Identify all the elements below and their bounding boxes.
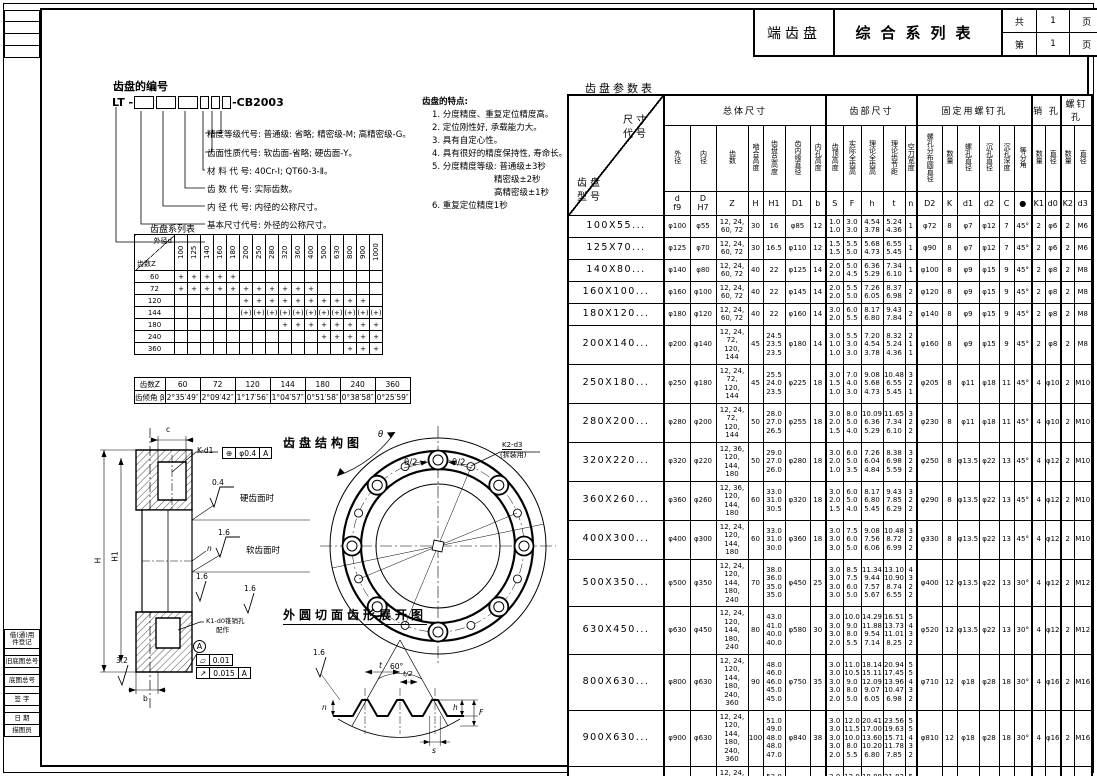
param-cell: 2 xyxy=(1061,654,1074,710)
param-cell: 1 xyxy=(905,237,917,259)
param-cell: φ12 xyxy=(1045,442,1061,481)
param-cell: φ85 xyxy=(785,215,810,237)
param-col-name-text: 数量 xyxy=(946,150,953,164)
param-cell: 7.0 4.0 3.0 xyxy=(843,364,861,403)
param-cell: φ22 xyxy=(979,442,999,481)
param-cell: 7 xyxy=(999,215,1014,237)
param-cell: 33.0 31.0 30.5 xyxy=(763,481,785,520)
param-data-row: 250X180...φ250φ18012, 24, 72, 120, 14445… xyxy=(568,364,1092,403)
param-cell: φ12 xyxy=(1045,559,1061,607)
structure-diagram-title: 齿盘结构图 xyxy=(283,434,363,451)
param-cell: 630X450... xyxy=(568,607,664,655)
param-cell: φ15 xyxy=(979,325,999,364)
param-cell: φ7 xyxy=(957,237,979,259)
param-cell: 2.0 2.0 xyxy=(826,259,843,281)
param-cell: 5.0 4.5 xyxy=(843,259,861,281)
param-cell: 8 xyxy=(942,237,957,259)
param-cell: 4 xyxy=(1032,766,1045,776)
param-cell: 2 xyxy=(1032,303,1045,325)
param-col-name-text: 沉孔深度 xyxy=(1003,143,1010,171)
param-cell: 45° xyxy=(1014,215,1032,237)
param-data-row: 125X70...φ125φ7012, 24, 60, 723016.5φ110… xyxy=(568,237,1092,259)
param-cell: M6 xyxy=(1074,215,1092,237)
param-cell: 60 xyxy=(748,520,763,559)
param-data-row: 400X300...φ400φ30012, 24, 120, 144, 1806… xyxy=(568,520,1092,559)
param-cell: 9 xyxy=(999,303,1014,325)
param-cell: φ18 xyxy=(957,654,979,710)
param-cell: φ9 xyxy=(957,281,979,303)
param-cell: 8 xyxy=(942,442,957,481)
param-col-name: 空刀宽度 xyxy=(905,125,917,191)
param-cell: φ255 xyxy=(785,403,810,442)
param-cell: 12, 24, 60, 72 xyxy=(716,259,748,281)
param-cell: φ250 xyxy=(917,442,942,481)
param-cell: 2 xyxy=(905,281,917,303)
param-symbol: b xyxy=(810,191,826,215)
param-symbol: Z xyxy=(716,191,748,215)
param-cell: φ160 xyxy=(785,303,810,325)
param-data-row: 140X80...φ140φ8012, 24, 60, 724022φ12514… xyxy=(568,259,1092,281)
param-cell: 3 2 2 xyxy=(905,520,917,559)
param-cell: 3.0 2.0 1.5 xyxy=(826,481,843,520)
param-data-row: 200X140...φ200φ14012, 24, 72, 120, 14445… xyxy=(568,325,1092,364)
finish-16-value: 1.6 xyxy=(196,572,208,581)
param-cell: φ180 xyxy=(785,325,810,364)
param-corner: 尺寸 代号齿盘 型号 xyxy=(568,95,664,215)
param-cell: 9 xyxy=(999,281,1014,303)
param-cell: 3.0 2.0 1.0 xyxy=(826,442,843,481)
param-cell: 12, 24, 120, 144, 180 xyxy=(716,520,748,559)
param-cell: 2 xyxy=(1032,281,1045,303)
param-cell: φ9 xyxy=(957,325,979,364)
param-cell: φ500 xyxy=(664,559,690,607)
param-cell: 20.41 17.00 13.60 10.20 6.80 xyxy=(861,710,883,766)
param-data-row: 800X630...φ800φ63012, 24, 120, 144, 180,… xyxy=(568,654,1092,710)
param-col-name: 数量 xyxy=(1061,125,1074,191)
param-cell: 70 xyxy=(748,559,763,607)
position-symbol: ⊕ xyxy=(223,448,236,458)
param-cell: 10.48 8.72 6.99 xyxy=(883,520,905,559)
param-symbol: D2 xyxy=(917,191,942,215)
param-cell: 12.0 10.5 9.0 6.0 xyxy=(843,766,861,776)
param-cell: 18 xyxy=(999,710,1014,766)
finish-soft-label: 软齿面时 xyxy=(246,544,280,556)
param-symbol: K1 xyxy=(1032,191,1045,215)
theta-label: θ xyxy=(378,430,383,440)
param-cell: φ9 xyxy=(957,259,979,281)
param-cell: φ8 xyxy=(1045,281,1061,303)
param-col-name: 等分角 xyxy=(1014,125,1032,191)
param-cell: 2 xyxy=(1061,303,1074,325)
param-col-name-text: 啮合高度 xyxy=(752,143,759,171)
param-cell: 12, 24, 72, 120, 144 xyxy=(716,325,748,364)
param-cell: 4 xyxy=(1032,520,1045,559)
param-cell: 13 xyxy=(999,520,1014,559)
param-cell: 50 xyxy=(748,403,763,442)
param-cell: 2 xyxy=(1061,403,1074,442)
param-cell: φ230 xyxy=(917,403,942,442)
param-data-row: 500X350...φ500φ35012, 24, 120, 144, 180,… xyxy=(568,559,1092,607)
param-cell: M10 xyxy=(1074,520,1092,559)
param-cell: 16.5 xyxy=(763,237,785,259)
param-data-row: 160X100...φ160φ10012, 24, 60, 724022φ145… xyxy=(568,281,1092,303)
param-cell: φ280 xyxy=(785,442,810,481)
param-cell: φ28 xyxy=(979,710,999,766)
param-cell: φ22 xyxy=(979,520,999,559)
param-cell: 22 xyxy=(763,281,785,303)
param-cell: 4 xyxy=(1032,403,1045,442)
param-cell: 3.0 2.0 1.5 xyxy=(826,403,843,442)
param-cell: M12 xyxy=(1074,559,1092,607)
param-symbol: H1 xyxy=(763,191,785,215)
param-cell: 2 xyxy=(1061,520,1074,559)
param-cell: 45° xyxy=(1014,442,1032,481)
param-cell: M10 xyxy=(1074,403,1092,442)
param-cell: 9 xyxy=(999,259,1014,281)
param-col-name: 沉孔深度 xyxy=(999,125,1014,191)
param-cell: 6.55 5.45 xyxy=(883,237,905,259)
param-cell: φ280 xyxy=(664,403,690,442)
param-col-name-text: 直径 xyxy=(1079,150,1086,164)
param-cell: φ12 xyxy=(979,237,999,259)
param-cell: 12.0 11.5 10.0 8.0 5.5 xyxy=(843,710,861,766)
param-cell: φ140 xyxy=(917,303,942,325)
param-cell: φ360 xyxy=(785,520,810,559)
param-cell: φ300 xyxy=(690,520,716,559)
param-col-name: 啮合高度 xyxy=(748,125,763,191)
finish-32-value: 3.2 xyxy=(116,656,128,665)
param-cell: 100 xyxy=(748,710,763,766)
param-cell: 5 5 4 3 2 xyxy=(905,710,917,766)
param-cell: M8 xyxy=(1074,325,1092,364)
param-cell: φ18 xyxy=(957,766,979,776)
param-cell: 12, 36, 120, 144, 180 xyxy=(716,481,748,520)
param-cell: 12, 24, 120, 144, 180, 240 xyxy=(716,559,748,607)
param-cell: 12 xyxy=(942,607,957,655)
param-cell: φ120 xyxy=(690,303,716,325)
param-cell: φ180 xyxy=(664,303,690,325)
position-datum: A xyxy=(260,448,271,458)
dim-h1-label: H1 xyxy=(111,551,120,561)
param-cell: M16 xyxy=(1074,766,1092,776)
param-cell: φ72 xyxy=(917,215,942,237)
dim-t-half-label: t/2 xyxy=(403,670,413,678)
param-cell: 8 xyxy=(942,520,957,559)
param-cell: 3 2 2 xyxy=(905,481,917,520)
param-cell: 6.0 5.5 xyxy=(843,303,861,325)
structure-diagram xyxy=(320,426,556,666)
param-cell: 18 xyxy=(810,481,826,520)
param-cell: φ940 xyxy=(785,766,810,776)
param-cell: 7.5 6.0 5.0 xyxy=(843,520,861,559)
param-cell: 18.89 15.11 11.34 7.56 xyxy=(861,766,883,776)
param-cell: 38.0 36.0 35.0 35.0 xyxy=(763,559,785,607)
param-cell: 1.0 1.0 xyxy=(826,215,843,237)
param-cell: 10.48 6.55 5.45 xyxy=(883,364,905,403)
param-cell: 38 xyxy=(810,710,826,766)
param-cell: 8 xyxy=(942,281,957,303)
param-cell: 5 4 3 2 xyxy=(905,607,917,655)
drawing-sheet: 借(通)用 件登记 旧底图总号 底图总号 签 字 日 期 描图员 端齿盘 综合系… xyxy=(0,0,1097,776)
param-cell: M12 xyxy=(1074,607,1092,655)
param-cell: φ350 xyxy=(690,559,716,607)
dim-h-label: H xyxy=(93,558,102,564)
param-cell: M16 xyxy=(1074,710,1092,766)
param-cell: 12 xyxy=(810,215,826,237)
param-cell: φ140 xyxy=(690,325,716,364)
param-col-name: 理论齿节距 xyxy=(883,125,905,191)
param-col-name-text: 理论全齿高 xyxy=(869,140,876,175)
param-cell: 45° xyxy=(1014,325,1032,364)
runout-value: 0.015 xyxy=(210,668,238,678)
param-col-name: 直径 xyxy=(1045,125,1061,191)
param-symbol: ● xyxy=(1014,191,1032,215)
param-cell: 12, 24, 144, 180, 240, 360 xyxy=(716,766,748,776)
param-cell: φ28 xyxy=(979,654,999,710)
param-cell: 18 xyxy=(999,654,1014,710)
param-cell: 3 2 1 xyxy=(905,364,917,403)
param-cell: 33.0 31.0 30.0 xyxy=(763,520,785,559)
param-cell: 160X100... xyxy=(568,281,664,303)
param-cell: 30 xyxy=(748,237,763,259)
param-col-name-text: 内孔高度 xyxy=(814,143,821,171)
param-corner-top: 尺寸 代号 xyxy=(623,114,649,142)
param-group-header: 销 孔 xyxy=(1032,95,1061,125)
dim-c-label: c xyxy=(166,425,170,434)
dim-b-label: b xyxy=(143,694,148,703)
param-cell: φ580 xyxy=(785,607,810,655)
param-symbol: t xyxy=(883,191,905,215)
param-cell: M8 xyxy=(1074,281,1092,303)
param-cell: M16 xyxy=(1074,654,1092,710)
param-cell: 11.65 7.34 6.10 xyxy=(883,403,905,442)
param-cell: 4 xyxy=(1032,607,1045,655)
param-cell: φ260 xyxy=(690,481,716,520)
param-cell: φ160 xyxy=(917,325,942,364)
param-cell: 18 xyxy=(810,520,826,559)
param-cell: 45° xyxy=(1014,481,1032,520)
param-cell: φ840 xyxy=(785,710,810,766)
param-cell: φ18 xyxy=(979,364,999,403)
flatness-tolerance-frame: ▱ 0.01 xyxy=(196,654,233,666)
param-cell: 3.0 3.0 3.0 3.0 xyxy=(826,559,843,607)
param-cell: φ900 xyxy=(664,710,690,766)
param-cell: φ125 xyxy=(785,259,810,281)
param-data-row: 280X200...φ280φ20012, 24, 72, 120, 14450… xyxy=(568,403,1092,442)
param-col-name-text: 等分角 xyxy=(1019,147,1026,168)
param-col-name-text: 沉孔直径 xyxy=(986,143,993,171)
param-cell: 8 xyxy=(942,259,957,281)
param-cell: 16 xyxy=(763,215,785,237)
param-cell: 1 xyxy=(905,259,917,281)
param-cell: 8.37 6.98 xyxy=(883,281,905,303)
param-cell: 3.0 3.0 3.0 3.0 2.0 xyxy=(826,710,843,766)
param-cell: φ180 xyxy=(690,364,716,403)
param-col-name: 内孔高度 xyxy=(810,125,826,191)
param-cell: φ910 xyxy=(917,766,942,776)
param-cell: 2 xyxy=(1061,364,1074,403)
param-cell: 30° xyxy=(1014,654,1032,710)
param-cell: φ13.5 xyxy=(957,442,979,481)
param-cell: φ11 xyxy=(957,403,979,442)
param-cell: 40 xyxy=(748,281,763,303)
param-cell: φ630 xyxy=(690,710,716,766)
param-symbol: d1 xyxy=(957,191,979,215)
param-symbol: S xyxy=(826,191,843,215)
param-cell: 2 xyxy=(1061,259,1074,281)
param-cell: 8.38 6.98 5.59 xyxy=(883,442,905,481)
param-cell: 45 xyxy=(748,364,763,403)
param-cell: φ13.5 xyxy=(957,559,979,607)
param-cell: φ630 xyxy=(664,607,690,655)
param-cell: φ100 xyxy=(664,215,690,237)
legend-leaders xyxy=(116,107,221,242)
param-col-name: 齿内缘直径 xyxy=(785,125,810,191)
param-cell: 12, 24, 120, 144, 180, 240 xyxy=(716,607,748,655)
param-symbol: h xyxy=(861,191,883,215)
param-cell: 9.08 5.68 4.73 xyxy=(861,364,883,403)
param-cell: φ205 xyxy=(917,364,942,403)
param-cell: 8 xyxy=(942,403,957,442)
param-cell: 6.0 5.0 3.5 xyxy=(843,442,861,481)
param-symbol: d2 xyxy=(979,191,999,215)
param-cell: φ1000 xyxy=(664,766,690,776)
param-cell: M8 xyxy=(1074,303,1092,325)
param-cell: φ400 xyxy=(664,520,690,559)
param-cell: 12 xyxy=(942,559,957,607)
param-cell: 100X55... xyxy=(568,215,664,237)
param-cell: 3.0 3.0 xyxy=(843,215,861,237)
param-cell: 90 xyxy=(748,654,763,710)
param-cell: 12, 24, 72, 120, 144 xyxy=(716,364,748,403)
param-cell: 16.51 13.73 11.01 8.25 xyxy=(883,607,905,655)
param-col-name-text: 螺孔分布圆直径 xyxy=(926,133,933,182)
param-cell: φ16 xyxy=(1045,654,1061,710)
param-cell: φ13.5 xyxy=(957,520,979,559)
param-col-name-text: 数量 xyxy=(1064,150,1071,164)
param-col-name-text: 理论齿节距 xyxy=(891,140,898,175)
param-cell: 28.0 27.0 26.5 xyxy=(763,403,785,442)
param-col-name: 理论全齿高 xyxy=(861,125,883,191)
param-cell: φ8 xyxy=(1045,325,1061,364)
param-cell: 360X260... xyxy=(568,481,664,520)
param-cell: 12, 24, 60, 72 xyxy=(716,215,748,237)
theta-half-left-label: θ/2 xyxy=(404,458,417,468)
param-cell: φ120 xyxy=(917,281,942,303)
param-cell: φ320 xyxy=(785,481,810,520)
param-symbol: d f9 xyxy=(664,191,690,215)
param-cell: φ10 xyxy=(1045,364,1061,403)
finish-hard-value: 0.4 xyxy=(212,478,224,487)
param-cell: 25.5 24.0 23.5 xyxy=(763,364,785,403)
param-cell: M10 xyxy=(1074,481,1092,520)
param-data-row: 630X450...φ630φ45012, 24, 120, 144, 180,… xyxy=(568,607,1092,655)
param-cell: 2 xyxy=(1061,215,1074,237)
param-cell: 180X120... xyxy=(568,303,664,325)
tooth-profile xyxy=(316,640,478,746)
angle-60-label: 60° xyxy=(390,662,403,671)
param-cell: 4 xyxy=(1032,559,1045,607)
param-cell: φ90 xyxy=(917,237,942,259)
pin-hole-note2: 配作 xyxy=(216,624,229,634)
param-cell: 50 xyxy=(748,442,763,481)
param-cell: 200X140... xyxy=(568,325,664,364)
param-cell: 3 2 2 xyxy=(905,403,917,442)
param-group-header: 齿部尺寸 xyxy=(826,95,917,125)
param-cell: 45° xyxy=(1014,403,1032,442)
param-cell: 23.56 19.63 15.71 11.78 7.85 xyxy=(883,710,905,766)
param-cell: 1000X800... xyxy=(568,766,664,776)
param-cell: 2 1 1 xyxy=(905,325,917,364)
param-col-name: 外径 xyxy=(664,125,690,191)
finish-hard-label: 硬齿面时 xyxy=(240,492,274,504)
param-cell: 11 xyxy=(999,403,1014,442)
param-cell: 320X220... xyxy=(568,442,664,481)
param-cell: 30° xyxy=(1014,607,1032,655)
param-group-row: 尺寸 代号齿盘 型号总体尺寸齿部尺寸固定用螺钉孔销 孔螺钉孔 xyxy=(568,95,1092,125)
param-cell: 12 xyxy=(810,237,826,259)
param-cell: 45° xyxy=(1014,237,1032,259)
param-cell: 2 xyxy=(1032,215,1045,237)
param-cell: 2 xyxy=(1032,259,1045,281)
param-cell: φ290 xyxy=(917,481,942,520)
param-cell: 7.26 6.05 xyxy=(861,281,883,303)
param-cell: 12, 24, 60, 72 xyxy=(716,303,748,325)
param-cell: 140X80... xyxy=(568,259,664,281)
param-cell: 12, 36, 120, 144, 180 xyxy=(716,442,748,481)
param-col-name-text: 齿数 xyxy=(729,150,736,164)
profile-finish-value: 1.6 xyxy=(313,648,325,657)
param-cell: φ22 xyxy=(979,481,999,520)
param-cell: 8 xyxy=(942,325,957,364)
param-cell: φ400 xyxy=(917,559,942,607)
param-cell: 53.0 52.0 52.0 52.0 xyxy=(763,766,785,776)
param-cell: φ15 xyxy=(979,259,999,281)
param-symbol: D H7 xyxy=(690,191,716,215)
param-cell: 2 xyxy=(1061,237,1074,259)
param-cell: M10 xyxy=(1074,442,1092,481)
param-cell: 2.0 2.0 xyxy=(826,281,843,303)
param-cell: φ330 xyxy=(917,520,942,559)
param-cell: M8 xyxy=(1074,259,1092,281)
param-cell: φ12 xyxy=(1045,520,1061,559)
param-cell: φ750 xyxy=(785,654,810,710)
param-cell: 12, 24, 72, 120, 144 xyxy=(716,403,748,442)
dim-n-profile-label: n xyxy=(322,703,327,712)
param-data-row: 1000X800...φ1000φ80012, 24, 144, 180, 24… xyxy=(568,766,1092,776)
param-cell: 7.20 4.54 3.78 xyxy=(861,325,883,364)
param-cell: φ360 xyxy=(664,481,690,520)
param-cell: 3.0 3.0 3.0 3.0 xyxy=(826,766,843,776)
param-cell: 2 xyxy=(1061,325,1074,364)
param-cell: 8.5 7.5 6.0 5.0 xyxy=(843,559,861,607)
param-cell: 14.29 11.88 9.54 7.14 xyxy=(861,607,883,655)
param-cell: 45° xyxy=(1014,259,1032,281)
finish-soft-value: 1.6 xyxy=(218,528,230,537)
param-cell: 3.0 1.5 1.0 xyxy=(826,364,843,403)
param-cell: 12, 24, 60, 72 xyxy=(716,281,748,303)
param-cell: 3.0 3.0 3.0 xyxy=(826,520,843,559)
param-cell: 2 xyxy=(1032,237,1045,259)
param-col-name: 螺孔直径 xyxy=(957,125,979,191)
param-cell: 13 xyxy=(999,481,1014,520)
param-cell: φ7 xyxy=(957,215,979,237)
param-col-name: 齿顶高度 xyxy=(826,125,843,191)
finish-16-value2: 1.6 xyxy=(244,584,256,593)
param-col-name: 沉孔直径 xyxy=(979,125,999,191)
param-group-header: 固定用螺钉孔 xyxy=(917,95,1032,125)
param-cell: 4 xyxy=(1032,481,1045,520)
